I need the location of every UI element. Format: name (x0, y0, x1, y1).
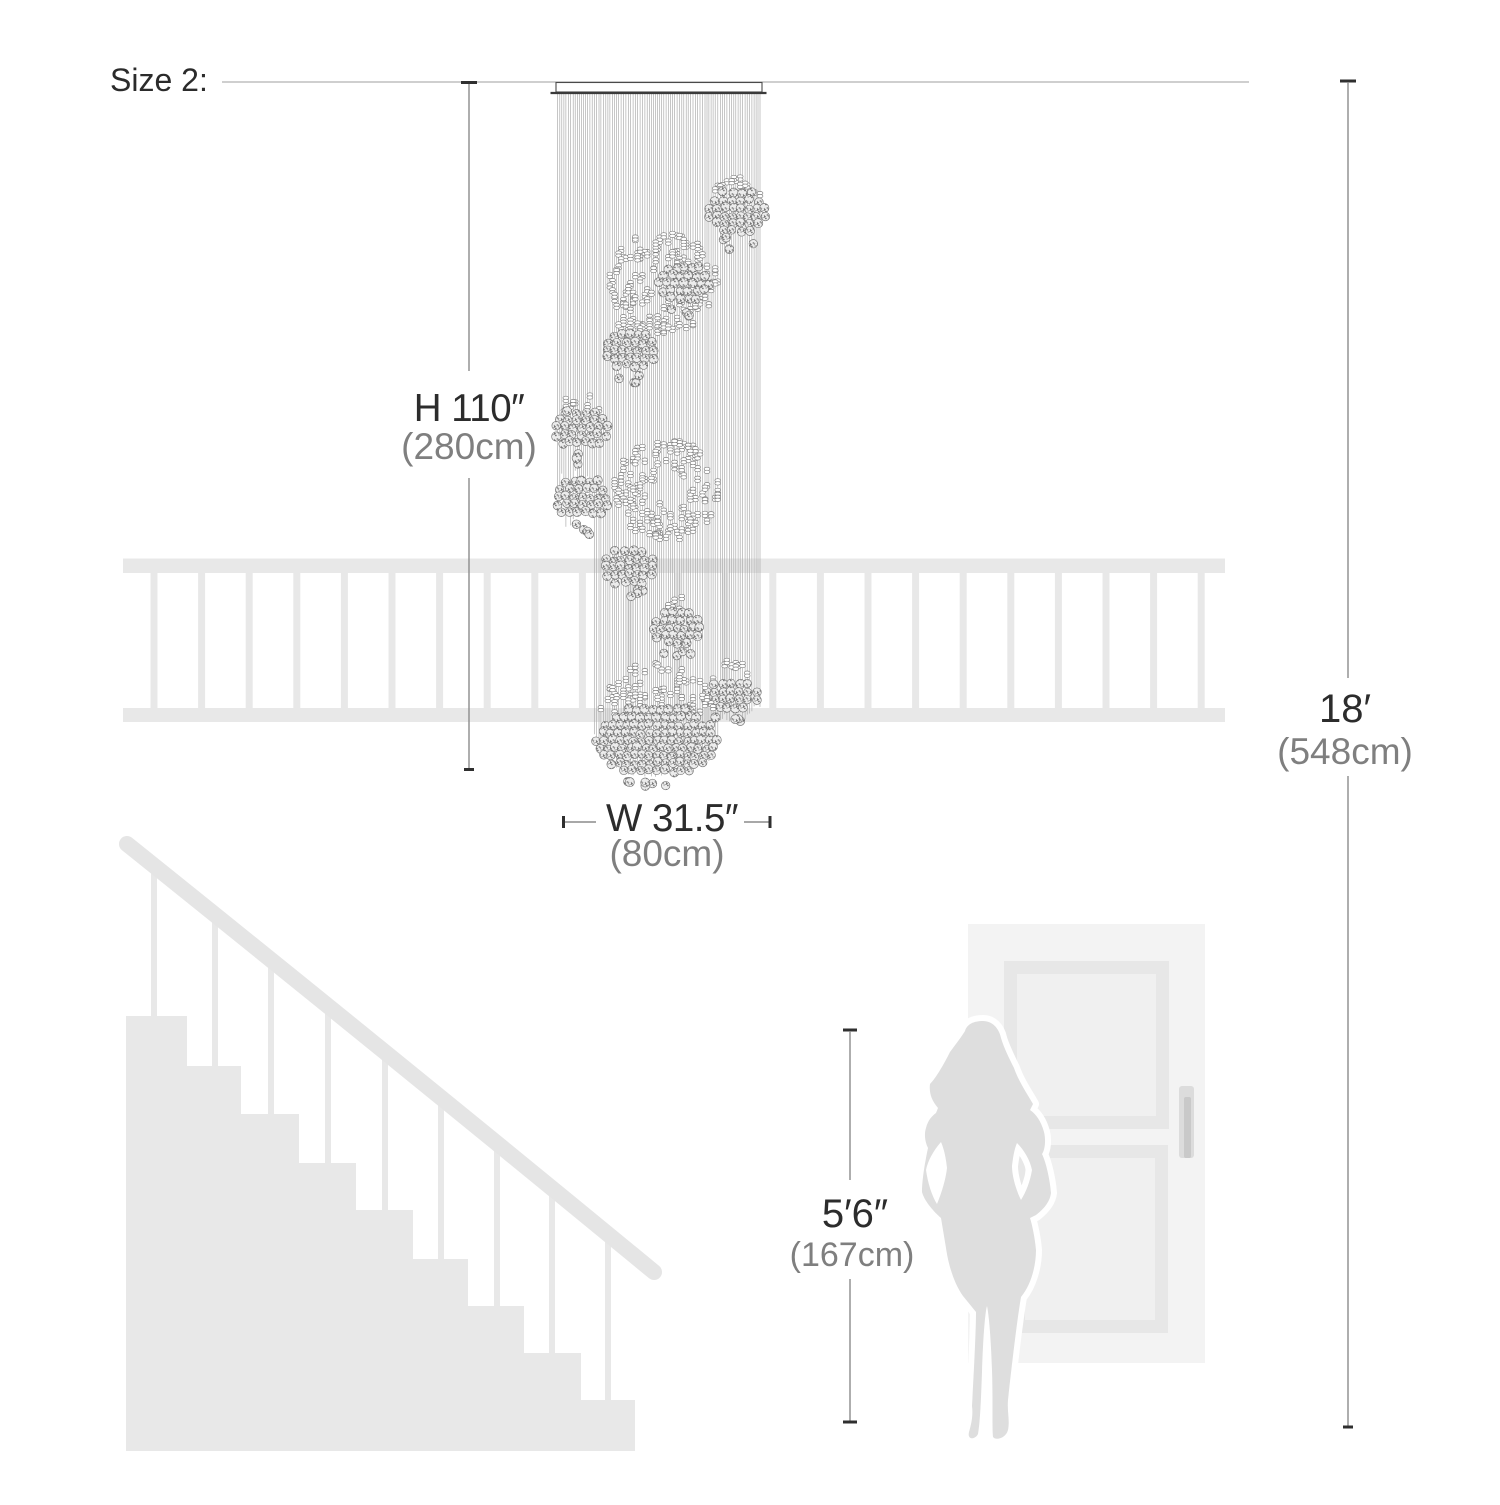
svg-text:5′6″: 5′6″ (822, 1192, 888, 1236)
svg-text:18′: 18′ (1319, 687, 1371, 731)
svg-text:(167cm): (167cm) (790, 1236, 915, 1274)
svg-text:Size 2:: Size 2: (110, 62, 208, 98)
svg-text:H 110″: H 110″ (414, 387, 525, 430)
svg-text:(280cm): (280cm) (401, 426, 537, 467)
svg-text:(80cm): (80cm) (609, 833, 724, 874)
svg-text:(548cm): (548cm) (1277, 731, 1413, 772)
